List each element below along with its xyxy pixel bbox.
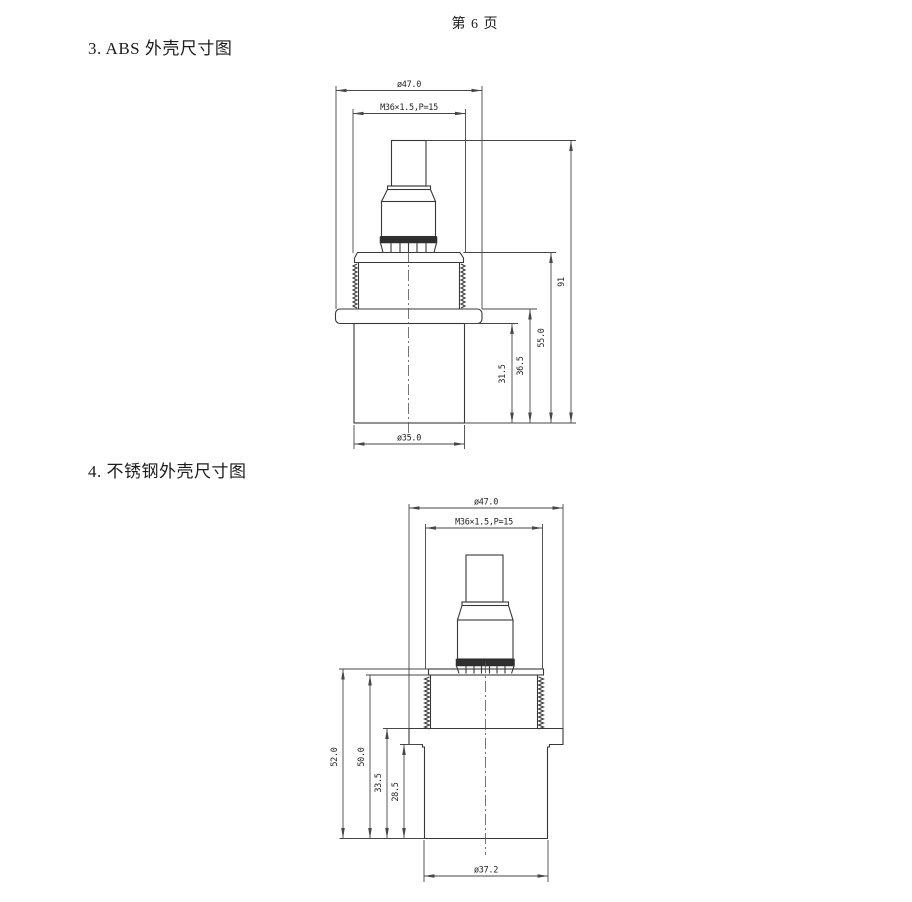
dimension-label: 28.5 <box>391 782 401 801</box>
abs-housing-drawing: ø47.0 M36×1.5,P=15 31.5 36.5 55.0 91 ø35… <box>336 80 577 449</box>
housing-top-plate <box>355 253 464 263</box>
dimension-label: M36×1.5,P=15 <box>455 518 513 528</box>
dimension-label: ø47.0 <box>397 80 421 90</box>
extension-line <box>353 109 466 253</box>
dimension-label: 31.5 <box>498 364 508 383</box>
cable-gland-cap <box>392 141 427 187</box>
extension-line <box>336 86 482 309</box>
steel-housing-outline <box>409 555 563 855</box>
dimension-label: 36.5 <box>516 356 526 375</box>
dimension-label: M36×1.5,P=15 <box>380 103 438 113</box>
dimension-label: 52.0 <box>330 747 340 766</box>
gland-body <box>458 620 514 659</box>
thread-right <box>461 264 465 308</box>
thread-root-lines <box>359 263 460 309</box>
thread-left <box>425 677 430 729</box>
technical-drawings-canvas: ø47.0 M36×1.5,P=15 31.5 36.5 55.0 91 ø35… <box>0 0 912 902</box>
dimension-label: ø37.2 <box>474 866 498 876</box>
dimension-label: ø35.0 <box>397 434 421 444</box>
dimension-label: 50.0 <box>357 747 367 766</box>
document-page: 第 6 页 3. ABS 外壳尺寸图 4. 不锈钢外壳尺寸图 <box>0 0 912 902</box>
extension-line <box>409 504 563 728</box>
abs-housing-outline <box>336 141 483 438</box>
dimension-label: 91 <box>557 277 567 287</box>
extension-line <box>426 524 543 669</box>
dimension-label: 33.5 <box>374 773 384 792</box>
housing-top-plate <box>429 669 544 675</box>
gland-nut-band <box>380 237 437 244</box>
thread-right <box>539 677 544 729</box>
dimension-label: 55.0 <box>537 328 547 347</box>
gland-body <box>382 202 436 237</box>
thread-left <box>353 264 357 308</box>
steel-housing-dimensions: ø47.0 M36×1.5,P=15 52.0 50.0 33.5 28.5 ø… <box>330 498 563 883</box>
lower-body <box>354 324 465 424</box>
thread-root-lines <box>431 675 538 729</box>
gland-taper <box>458 606 514 621</box>
abs-housing-dimensions: ø47.0 M36×1.5,P=15 31.5 36.5 55.0 91 ø35… <box>336 80 576 449</box>
cable-gland-cap <box>466 555 503 602</box>
gland-taper <box>382 190 436 202</box>
steel-housing-drawing: ø47.0 M36×1.5,P=15 52.0 50.0 33.5 28.5 ø… <box>330 498 563 883</box>
shoulder-and-lower-body <box>409 729 563 839</box>
dimension-label: ø47.0 <box>474 498 498 508</box>
extension-line <box>339 669 429 839</box>
